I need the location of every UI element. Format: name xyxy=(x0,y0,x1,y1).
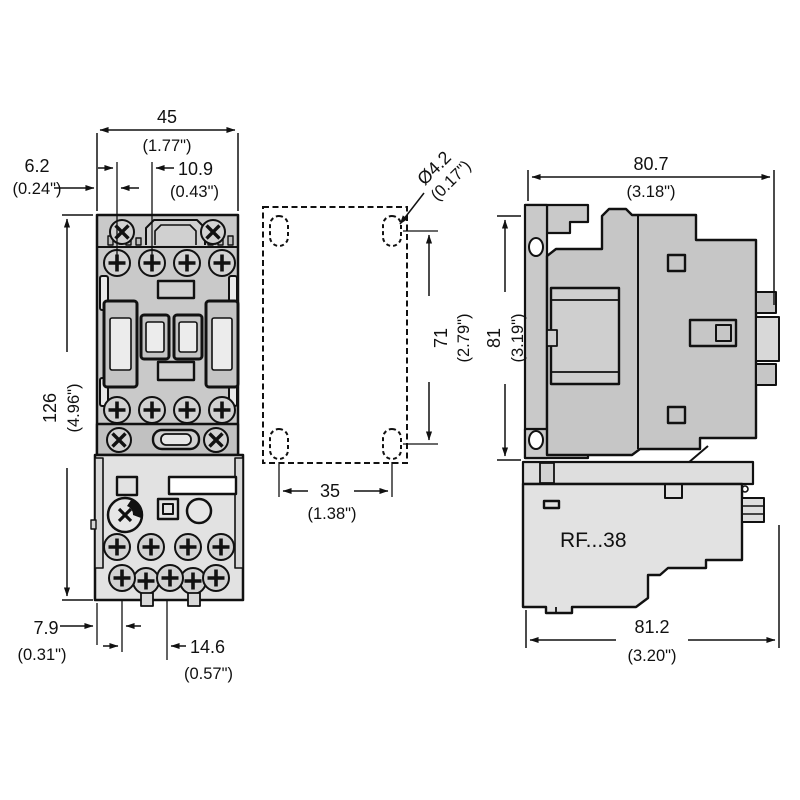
dim-text-35-mm: 35 xyxy=(320,481,340,501)
center-tab-top xyxy=(158,281,194,298)
dim-text-45-mm: 45 xyxy=(157,107,177,127)
relay-side-top-strip xyxy=(523,462,753,484)
line-screw-4 xyxy=(209,250,235,276)
dim-text-71-in: (2.79") xyxy=(455,314,473,363)
dim-text-146-in: (0.57") xyxy=(184,665,233,683)
drawing-svg: RF...38 xyxy=(0,0,800,800)
side-terminals-right xyxy=(756,292,779,385)
dim-text-807-mm: 80.7 xyxy=(633,154,668,174)
mounting-slot-tl xyxy=(270,216,288,246)
relay-screw-4 xyxy=(208,534,234,560)
mounting-slot-tr xyxy=(383,216,401,246)
mounting-slot-bl xyxy=(270,429,288,459)
top-screw-right xyxy=(201,220,225,244)
relay-label-plate xyxy=(169,477,236,494)
flange-hole-bottom xyxy=(529,431,543,449)
relay-screw-2 xyxy=(138,534,164,560)
relay-product-label: RF...38 xyxy=(560,529,627,552)
dim-text-812-mm: 81.2 xyxy=(634,617,669,637)
dimensional-drawing-page: { "front_view": { "width": {"mm": "45", … xyxy=(0,0,800,800)
dim-text-71-mm: 71 xyxy=(431,328,451,348)
dim-text-81-mm: 81 xyxy=(484,328,504,348)
dim-text-146-mm: 14.6 xyxy=(190,637,225,657)
center-tab-bottom xyxy=(158,362,194,380)
dim-text-79-in: (0.31") xyxy=(18,646,67,664)
relay-reset-button xyxy=(187,499,211,523)
dim-text-62-mm: 6.2 xyxy=(24,156,49,176)
line-screw-5 xyxy=(104,397,130,423)
coil-screw-left xyxy=(107,428,131,452)
coil-screw-right xyxy=(204,428,228,452)
dim-text-812-in: (3.20") xyxy=(628,647,677,665)
relay-screw-1 xyxy=(104,534,130,560)
dim-text-807-in: (3.18") xyxy=(627,183,676,201)
top-screw-left xyxy=(110,220,134,244)
dim-bottom-offsets xyxy=(60,600,186,660)
line-screw-7 xyxy=(174,397,200,423)
flange-hole-top xyxy=(529,238,543,256)
mounting-outline xyxy=(263,207,407,463)
dim-text-109-mm: 10.9 xyxy=(178,159,213,179)
dim-text-109-in: (0.43") xyxy=(170,183,219,201)
dim-text-81-in: (3.19") xyxy=(509,314,527,363)
coil-window xyxy=(551,288,619,384)
dim-text-79-mm: 7.9 xyxy=(33,618,58,638)
line-screw-3 xyxy=(174,250,200,276)
dim-text-126-in: (4.96") xyxy=(65,384,83,433)
dim-text-126-mm: 126 xyxy=(40,393,60,423)
dim-text-45-in: (1.77") xyxy=(143,137,192,155)
dim-hole-leader xyxy=(400,193,424,224)
dim-text-hole-diameter: Ø4.2 (0.17") xyxy=(412,142,475,205)
dim-text-35-in: (1.38") xyxy=(308,505,357,523)
line-screw-6 xyxy=(139,397,165,423)
mounting-slot-br xyxy=(383,429,401,459)
relay-screw-3 xyxy=(175,534,201,560)
relay-side-body xyxy=(523,484,742,613)
front-view xyxy=(91,215,243,606)
relay-side-terminal xyxy=(742,498,764,522)
side-view: RF...38 xyxy=(523,205,779,613)
line-screw-8 xyxy=(209,397,235,423)
dim-text-62-in: (0.24") xyxy=(13,180,62,198)
mounting-pattern xyxy=(263,207,407,463)
